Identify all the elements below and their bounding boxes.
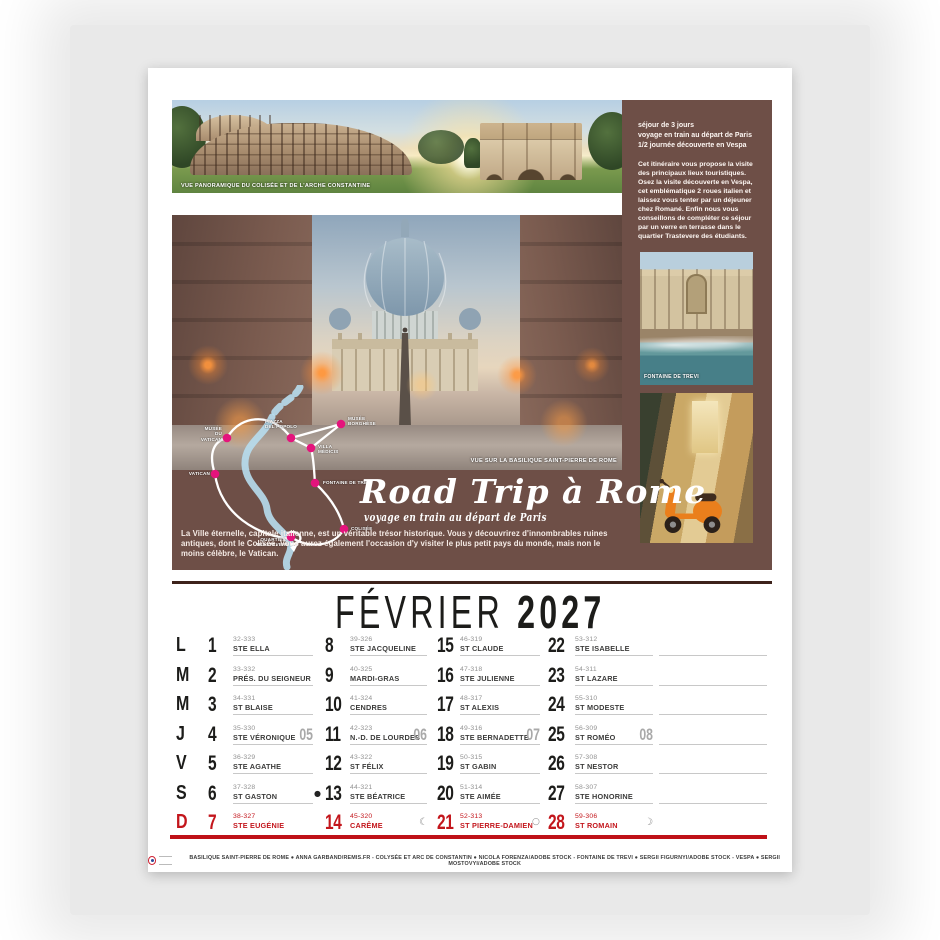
last-quarter-moon-icon: ☽	[644, 817, 653, 828]
calendar-row-wednesday: M 334-331ST BLAISE 1041-324CENDRES 1748-…	[170, 691, 770, 721]
date-number: 23	[548, 663, 565, 688]
photo-credits: BASILIQUE SAINT-PIERRE DE ROME ● ANNA GA…	[148, 852, 792, 870]
basilica-caption: VUE SUR LA BASILIQUE SAINT-PIERRE DE ROM…	[471, 458, 617, 464]
saint-name: ST GABIN	[460, 763, 540, 772]
vespa-photo	[640, 393, 753, 543]
calendar-product-photo: VUE PANORAMIQUE DU COLISÉE ET DE L'ARCHE…	[0, 0, 940, 940]
saint-name: ST FÉLIX	[350, 763, 427, 772]
saint-name: ST LAZARE	[575, 675, 653, 684]
week-number: 08	[629, 725, 653, 745]
info-line: séjour de 3 jours	[638, 121, 762, 131]
notes-line	[659, 725, 767, 745]
week-number: 07	[516, 725, 540, 745]
trevi-caption: FONTAINE DE TREVI	[644, 374, 699, 380]
date-number: 17	[437, 692, 454, 717]
publisher-logo-text	[159, 856, 172, 865]
map-label-musee-borghese: MUSÉE BORGHÈSE	[348, 416, 376, 427]
day-letter: V	[176, 752, 187, 775]
trip-description: La Ville éternelle, capitale italienne, …	[181, 529, 619, 558]
day-count-code: 59-306	[575, 813, 653, 821]
notes-line	[659, 754, 767, 774]
saint-name: STE ELLA	[233, 645, 313, 654]
day-letter: M	[176, 664, 189, 687]
day-count-code: 51-314	[460, 784, 540, 792]
date-number: 28	[548, 810, 565, 835]
info-paragraph: Cet itinéraire vous propose la visite de…	[638, 160, 762, 241]
calendar-row-tuesday: M 233-332PRÉS. DU SEIGNEUR 940-325MARDI-…	[170, 662, 770, 692]
date-number: 11	[325, 722, 341, 747]
white-divider	[172, 193, 622, 215]
map-label-piazza-del-popolo: PIAZZA DEL POPOLO	[265, 419, 297, 430]
divider-rule	[172, 581, 772, 584]
date-number: 16	[437, 663, 454, 688]
date-number: 20	[437, 781, 454, 806]
date-number: 26	[548, 751, 565, 776]
saint-name: PRÉS. DU SEIGNEUR	[233, 675, 313, 684]
first-quarter-moon-icon: ☾	[419, 817, 428, 828]
saint-name: STE HONORINE	[575, 793, 653, 802]
date-number: 19	[437, 751, 454, 776]
saint-name: STE BÉATRICE	[350, 793, 427, 802]
notes-line	[659, 636, 767, 656]
info-line: 1/2 journée découverte en Vespa	[638, 141, 762, 151]
day-count-code: 37-328	[233, 784, 313, 792]
saint-name: CENDRES	[350, 704, 427, 713]
day-letter: L	[176, 634, 186, 657]
date-number: 12	[325, 751, 342, 776]
saint-name: ST NESTOR	[575, 763, 653, 772]
hero-block: VUE PANORAMIQUE DU COLISÉE ET DE L'ARCHE…	[172, 100, 772, 570]
day-count-code: 33-332	[233, 666, 313, 674]
map-label-musee-vatican: MUSÉE DU VATICAN	[196, 426, 222, 442]
date-number: 3	[208, 692, 216, 717]
day-count-code: 38-327	[233, 813, 313, 821]
saint-name: ST MODESTE	[575, 704, 653, 713]
saint-name: ST PIERRE-DAMIEN	[460, 822, 540, 831]
saint-name: MARDI-GRAS	[350, 675, 427, 684]
day-count-code: 40-325	[350, 666, 427, 674]
day-count-code: 58-307	[575, 784, 653, 792]
day-count-code: 53-312	[575, 636, 653, 644]
saint-name: CARÊME	[350, 822, 427, 831]
publisher-logo-icon	[148, 856, 156, 865]
saint-name: STE JACQUELINE	[350, 645, 427, 654]
info-line: voyage en train au départ de Paris	[638, 131, 762, 141]
day-letter: M	[176, 693, 189, 716]
panorama-caption: VUE PANORAMIQUE DU COLISÉE ET DE L'ARCHE…	[181, 183, 370, 189]
day-count-code: 32-333	[233, 636, 313, 644]
saint-name: STE AIMÉE	[460, 793, 540, 802]
date-number: 25	[548, 722, 565, 747]
date-number: 1	[208, 633, 216, 658]
map-label-vatican: VATICAN	[184, 471, 210, 476]
date-number: 14	[325, 810, 342, 835]
saint-name: ST BLAISE	[233, 704, 313, 713]
date-number: 9	[325, 663, 333, 688]
sunday-red-rule	[170, 835, 767, 839]
day-count-code: 41-324	[350, 695, 427, 703]
itinerary-info-block: séjour de 3 jours voyage en train au dép…	[638, 121, 762, 241]
trip-subtitle: voyage en train au départ de Paris	[364, 511, 547, 524]
day-count-code: 43-322	[350, 754, 427, 762]
calendar-row-friday: V 536-329STE AGATHE 1243-322ST FÉLIX 195…	[170, 750, 770, 780]
week-number: 06	[403, 725, 427, 745]
calendar-row-monday: L 132-333STE ELLA 839-326STE JACQUELINE …	[170, 632, 770, 662]
day-letter: S	[176, 782, 187, 805]
map-label-villa-medicis: VILLA MÉDICIS	[318, 444, 339, 455]
date-number: 21	[437, 810, 454, 835]
year: 2027	[517, 586, 605, 638]
alley-light	[692, 401, 718, 453]
day-count-code: 34-331	[233, 695, 313, 703]
colosseum-panorama-photo: VUE PANORAMIQUE DU COLISÉE ET DE L'ARCHE…	[172, 100, 622, 193]
saint-name: ST ROMAIN	[575, 822, 653, 831]
tree	[418, 130, 464, 164]
date-number: 27	[548, 781, 565, 806]
saint-name: STE EUGÉNIE	[233, 822, 313, 831]
day-count-code: 48-317	[460, 695, 540, 703]
colosseum	[190, 123, 412, 175]
notes-line	[659, 695, 767, 715]
trip-title: Road Trip à Rome	[360, 472, 706, 511]
day-count-code: 46-319	[460, 636, 540, 644]
arch-of-constantine	[480, 123, 582, 180]
notes-line	[659, 666, 767, 686]
full-moon-icon: ○	[532, 817, 540, 827]
day-count-code: 50-315	[460, 754, 540, 762]
trevi-water-foam	[640, 336, 753, 354]
date-number: 24	[548, 692, 565, 717]
day-count-code: 55-310	[575, 695, 653, 703]
date-number: 5	[208, 751, 216, 776]
saint-name: ST GASTON	[233, 793, 313, 802]
date-number: 2	[208, 663, 216, 688]
notes-line	[659, 784, 767, 804]
day-count-code: 54-311	[575, 666, 653, 674]
date-number: 4	[208, 722, 216, 747]
date-number: 15	[437, 633, 454, 658]
saint-name: STE JULIENNE	[460, 675, 540, 684]
trevi-statue-niche	[686, 274, 707, 314]
credits-text: BASILIQUE SAINT-PIERRE DE ROME ● ANNA GA…	[177, 855, 792, 867]
day-count-code: 52-313	[460, 813, 540, 821]
calendar-grid: L 132-333STE ELLA 839-326STE JACQUELINE …	[170, 632, 770, 846]
day-count-code: 47-318	[460, 666, 540, 674]
calendar-page: VUE PANORAMIQUE DU COLISÉE ET DE L'ARCHE…	[148, 68, 792, 872]
day-count-code: 45-320	[350, 813, 427, 821]
day-letter: J	[176, 723, 185, 746]
saint-name: STE AGATHE	[233, 763, 313, 772]
day-letter: D	[176, 811, 188, 834]
date-number: 8	[325, 633, 333, 658]
saint-name: ST ALEXIS	[460, 704, 540, 713]
day-count-code: 36-329	[233, 754, 313, 762]
calendar-row-thursday: J 435-330STE VÉRONIQUE 1142-323N.-D. DE …	[170, 721, 770, 751]
day-count-code: 39-326	[350, 636, 427, 644]
date-number: 18	[437, 722, 454, 747]
date-number: 10	[325, 692, 342, 717]
day-count-code: 57-308	[575, 754, 653, 762]
month-name: FÉVRIER	[335, 586, 504, 638]
date-number: 6	[208, 781, 216, 806]
date-number: 7	[208, 810, 216, 835]
month-header: FÉVRIER 2027	[148, 585, 792, 639]
day-count-code: 44-321	[350, 784, 427, 792]
trevi-fountain-photo: FONTAINE DE TREVI	[640, 252, 753, 385]
calendar-row-saturday: S 637-328ST GASTON ● 1344-321STE BÉATRIC…	[170, 780, 770, 810]
date-number: 13	[325, 781, 342, 806]
new-moon-icon: ●	[314, 789, 321, 798]
saint-name: ST CLAUDE	[460, 645, 540, 654]
date-number: 22	[548, 633, 565, 658]
week-number: 05	[289, 725, 313, 745]
saint-name: STE ISABELLE	[575, 645, 653, 654]
